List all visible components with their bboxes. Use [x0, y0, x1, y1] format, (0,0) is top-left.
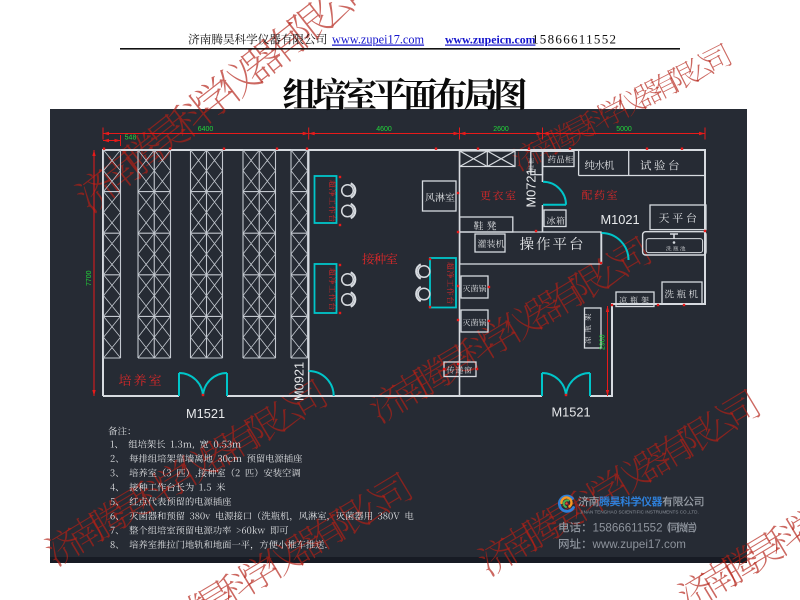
- svg-text:2600: 2600: [493, 126, 509, 133]
- svg-text:5000: 5000: [616, 126, 632, 133]
- svg-text:15866611552: 15866611552: [532, 32, 617, 47]
- svg-text:M1521: M1521: [186, 406, 225, 421]
- svg-text:6400: 6400: [198, 126, 214, 133]
- svg-text:www.zupei17.com: www.zupei17.com: [332, 33, 425, 47]
- svg-text:JINAN TENGHAO SCIENTIFIC INSTR: JINAN TENGHAO SCIENTIFIC INSTRUMENTS CO.…: [580, 510, 699, 515]
- svg-text:M0921: M0921: [292, 362, 307, 401]
- svg-text:M0721: M0721: [524, 168, 539, 207]
- svg-text:7700: 7700: [86, 270, 93, 286]
- svg-text:www.zupeicn.com: www.zupeicn.com: [445, 33, 536, 47]
- svg-text:www.zupei17.com: www.zupei17.com: [592, 538, 686, 551]
- svg-text:15866611552: 15866611552: [593, 522, 663, 535]
- svg-text:548: 548: [125, 135, 137, 142]
- svg-text:M1021: M1021: [601, 212, 640, 227]
- svg-text:2900: 2900: [600, 334, 607, 350]
- svg-text:M1521: M1521: [552, 405, 591, 420]
- svg-text:4600: 4600: [376, 126, 392, 133]
